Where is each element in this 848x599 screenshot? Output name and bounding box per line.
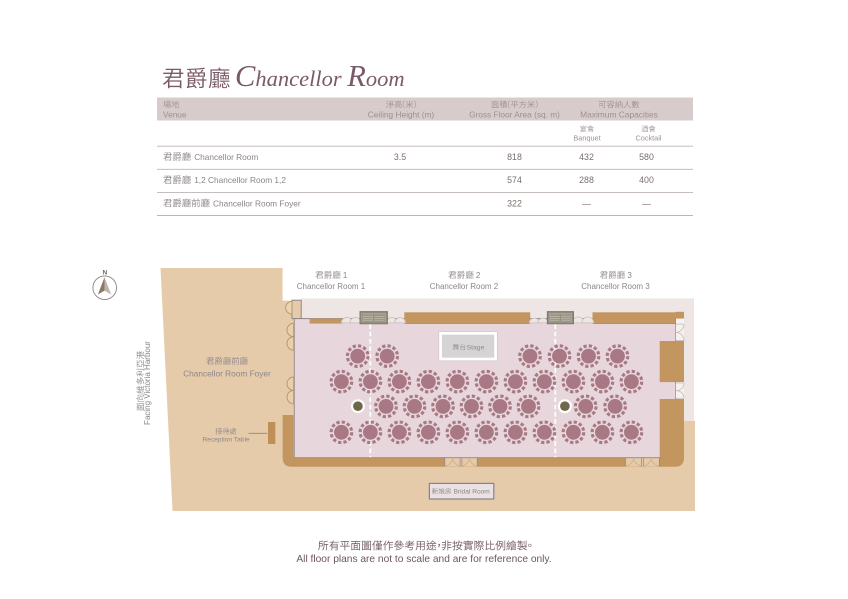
svg-text:3: 3 (627, 271, 632, 280)
svg-text:All floor plans are not to sca: All floor plans are not to scale and are… (296, 554, 551, 565)
svg-text:2: 2 (476, 271, 481, 280)
svg-text:3.5: 3.5 (394, 152, 406, 162)
svg-text:400: 400 (639, 175, 654, 185)
svg-text:574: 574 (507, 175, 522, 185)
svg-text:Chancellor Room: Chancellor Room (194, 152, 258, 162)
svg-text:Venue: Venue (163, 110, 187, 120)
svg-text:Chancellor Room: Chancellor Room (235, 59, 405, 93)
svg-text:1: 1 (343, 271, 348, 280)
svg-text:818: 818 (507, 152, 522, 162)
svg-text:Banquet: Banquet (573, 134, 600, 143)
svg-text:432: 432 (579, 152, 594, 162)
svg-text:—: — (582, 198, 591, 208)
svg-text:288: 288 (579, 175, 594, 185)
svg-text:Chancellor Room Foyer: Chancellor Room Foyer (183, 369, 271, 379)
svg-text:Cocktail: Cocktail (636, 134, 662, 143)
svg-text:Chancellor Room 1: Chancellor Room 1 (297, 282, 366, 291)
svg-text:—: — (642, 198, 651, 208)
svg-text:Stage: Stage (467, 345, 485, 352)
svg-text:Bridal Room: Bridal Room (454, 489, 491, 496)
svg-text:Ceiling Height (m): Ceiling Height (m) (368, 110, 435, 120)
svg-text:Reception Table: Reception Table (202, 437, 249, 444)
svg-text:Chancellor Room 2: Chancellor Room 2 (430, 282, 499, 291)
svg-text:Maximum Capacities: Maximum Capacities (580, 110, 658, 120)
svg-text:N: N (103, 270, 108, 277)
svg-text:Gross Floor Area (sq. m): Gross Floor Area (sq. m) (469, 110, 560, 120)
svg-text:1,2 Chancellor Room 1,2: 1,2 Chancellor Room 1,2 (194, 175, 286, 185)
svg-text:580: 580 (639, 152, 654, 162)
svg-text:Facing Victoria Harbour: Facing Victoria Harbour (143, 341, 152, 425)
svg-text:322: 322 (507, 198, 522, 208)
svg-text:Chancellor Room 3: Chancellor Room 3 (581, 282, 650, 291)
svg-text:Chancellor Room Foyer: Chancellor Room Foyer (213, 198, 301, 208)
